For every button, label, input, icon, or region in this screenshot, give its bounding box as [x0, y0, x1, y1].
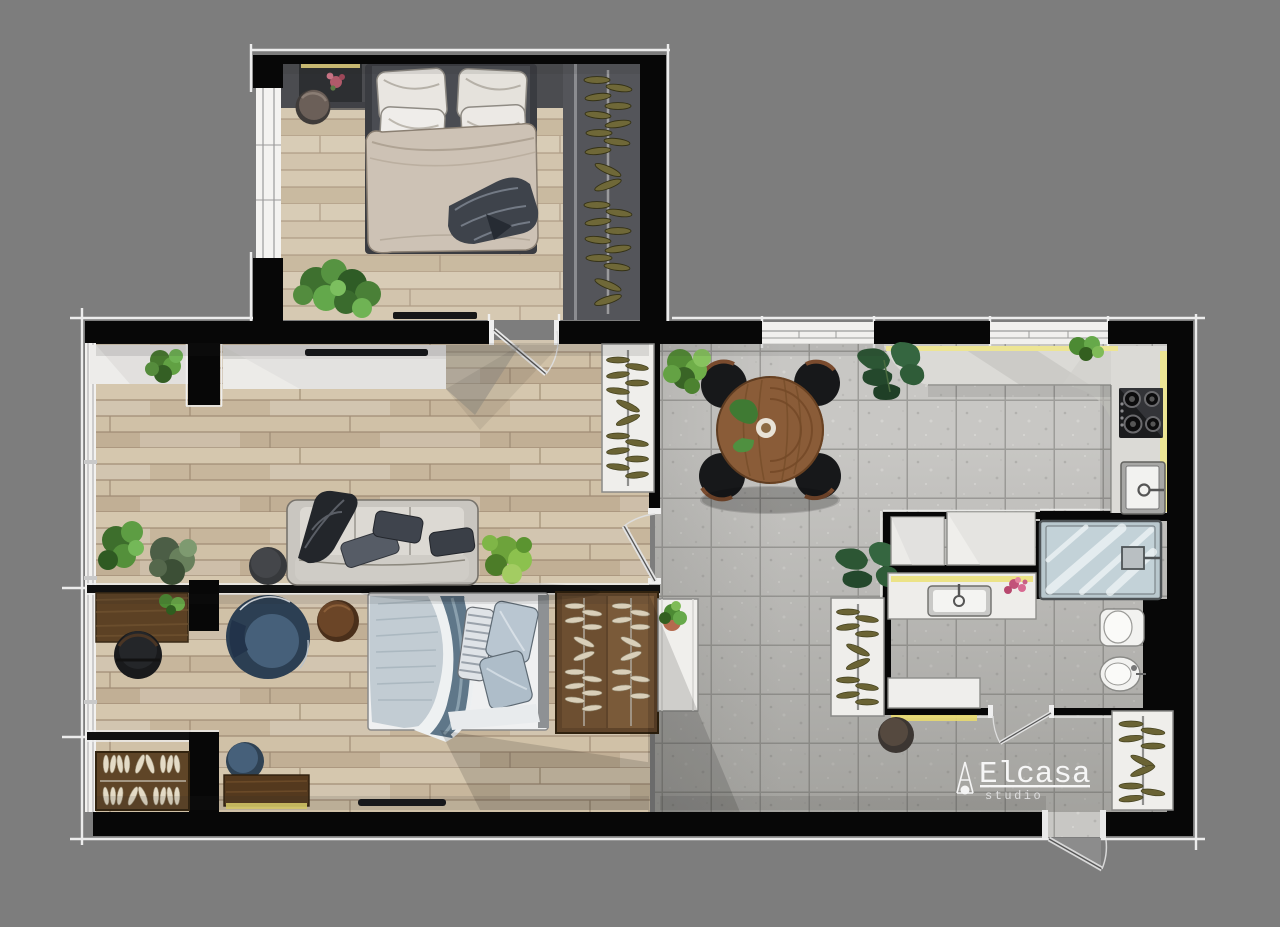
svg-text:studio: studio: [985, 789, 1043, 803]
